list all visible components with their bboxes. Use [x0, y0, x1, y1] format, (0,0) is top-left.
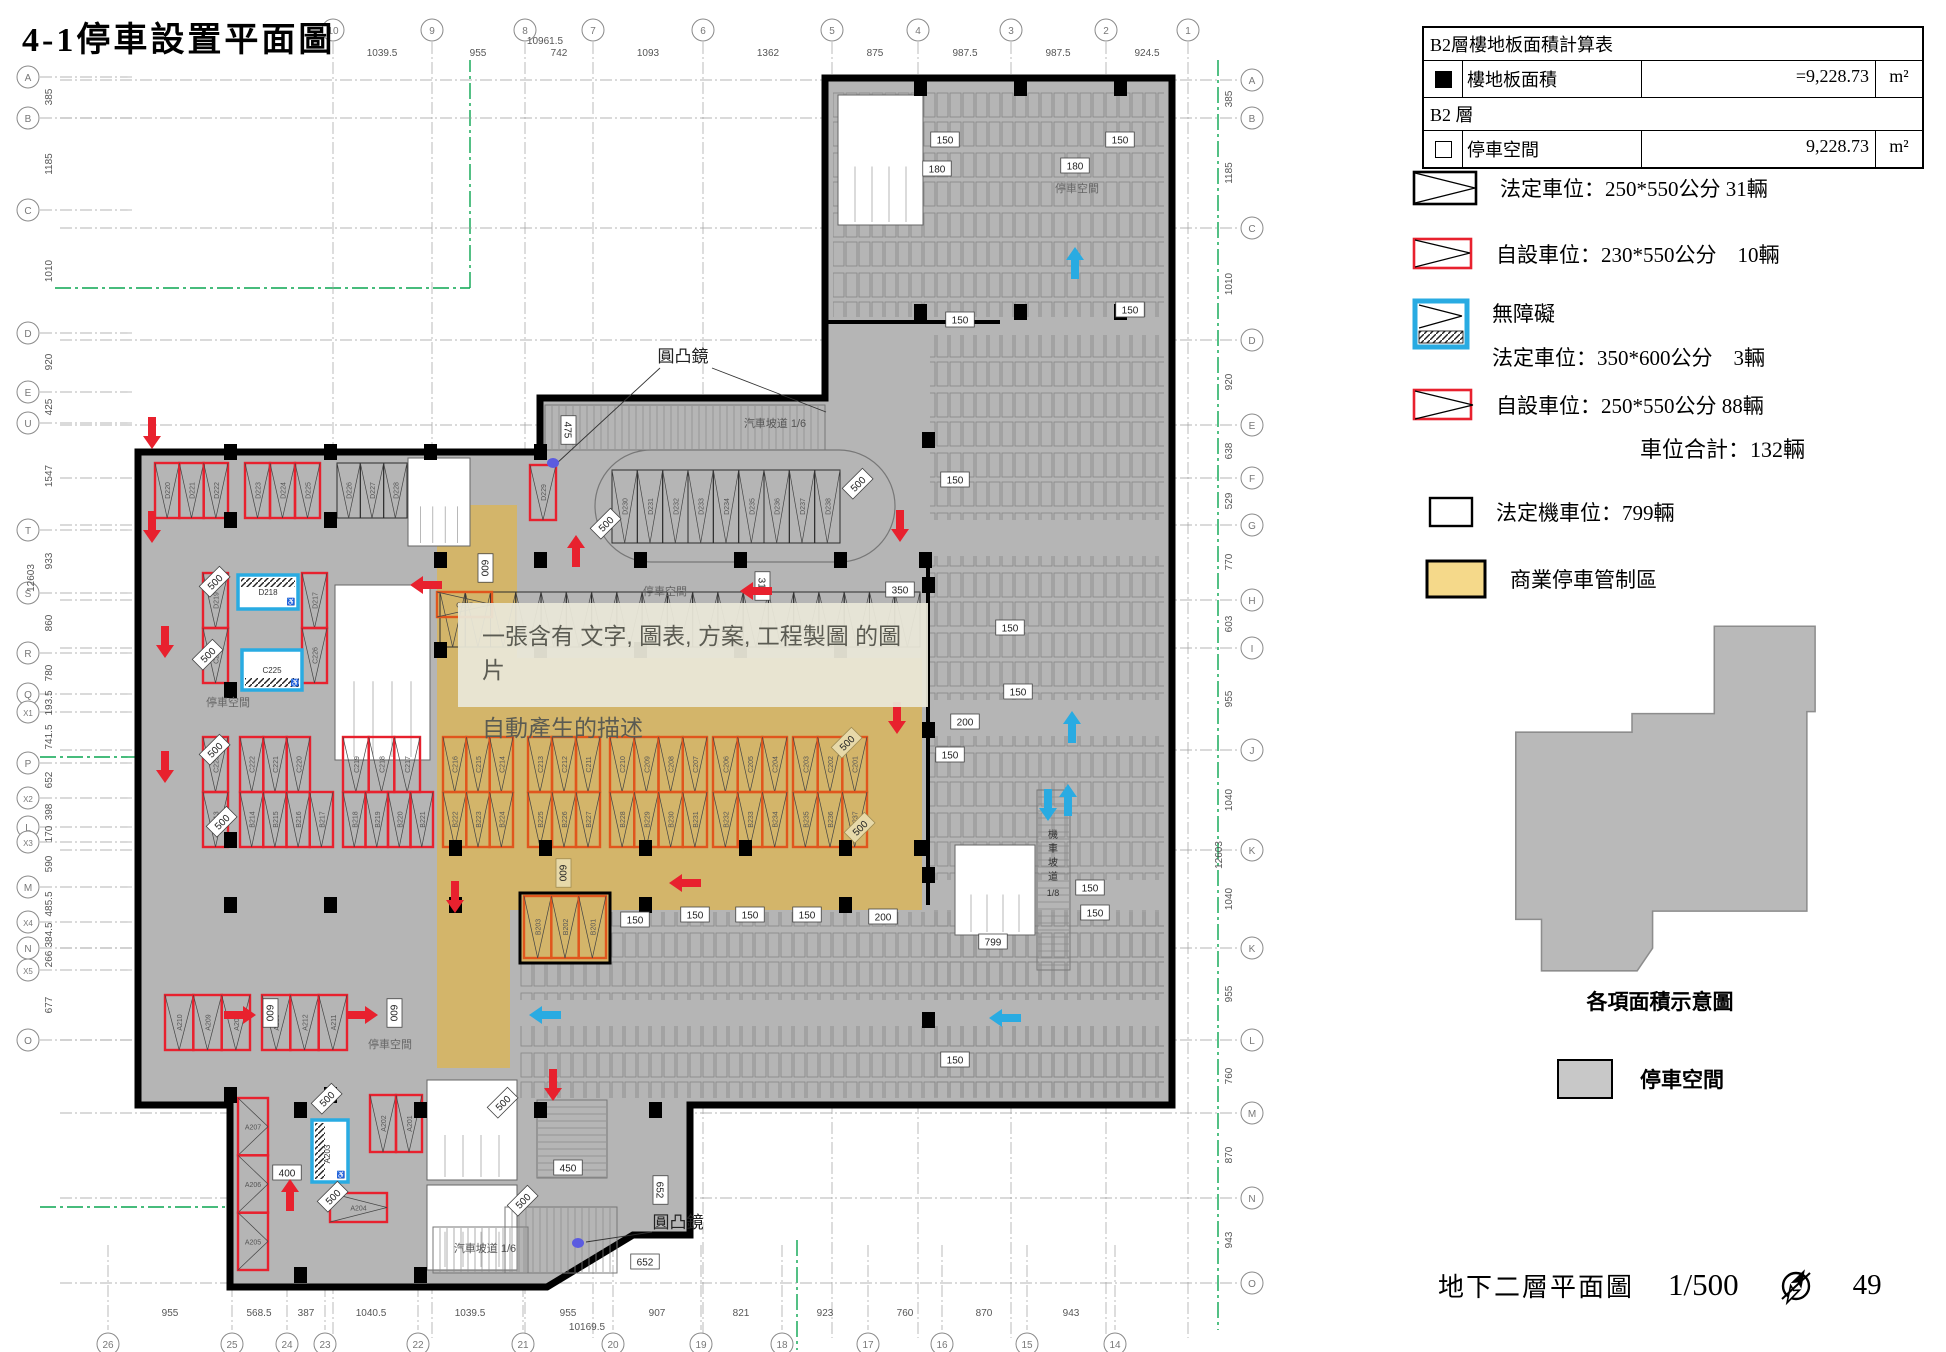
stall-label: B228: [620, 811, 627, 827]
tag-label: 200: [869, 909, 898, 924]
grid-label: 24: [281, 1340, 293, 1351]
stall-label: B218: [352, 811, 359, 827]
grid-label: O: [1248, 1279, 1256, 1290]
tag-text: 150: [1010, 688, 1027, 699]
dim-label: 955: [560, 1308, 577, 1319]
dim-label: 875: [867, 48, 884, 59]
column-marker: [534, 1102, 547, 1118]
column-marker: [734, 552, 747, 568]
stall-label: D220: [165, 482, 172, 499]
legend-item-self-car-230: 自設車位：230*550公分 10輛: [1412, 237, 1780, 271]
dim-label: 923: [817, 1308, 834, 1319]
column-marker: [539, 840, 552, 856]
tag-label: 652: [631, 1254, 660, 1269]
grid-label: X1: [23, 709, 33, 718]
dim-label: 741.5: [44, 724, 55, 749]
grid-label: 23: [319, 1340, 331, 1351]
grid-label: 9: [429, 26, 435, 37]
tag-label: 150: [736, 907, 765, 922]
column-marker: [639, 840, 652, 856]
tag-label: 150: [1076, 880, 1105, 895]
dim-label: 193.5: [44, 690, 55, 715]
stall-label: C204: [773, 756, 780, 773]
grid-label: B: [1249, 114, 1256, 125]
column-marker: [639, 897, 652, 913]
wheelchair-icon: ♿: [287, 597, 296, 606]
dim-label: 170: [44, 825, 55, 842]
drawing-sheet: 1098765432126252423222120191817161514ABC…: [0, 0, 1946, 1352]
accessible-stall-icon: [1412, 298, 1470, 350]
footer-scale: 1/500: [1668, 1267, 1739, 1303]
grid-label: 2: [1103, 26, 1109, 37]
stall-label: B234: [773, 811, 780, 827]
tag-text: 652: [637, 1258, 654, 1269]
legend-label: 自設車位：250*550公分 88輛: [1496, 390, 1764, 420]
column-marker: [434, 552, 447, 568]
key-plan-shape: [1516, 626, 1815, 971]
row-label: 樓地板面積: [1463, 61, 1641, 97]
stall-label: D228: [393, 482, 400, 499]
core-room: [335, 585, 430, 760]
grid-label: P: [25, 759, 32, 770]
dim-label: 987.5: [952, 48, 977, 59]
tag-label: 799: [979, 934, 1008, 949]
tag-label: 450: [554, 1160, 583, 1175]
dim-label: 860: [44, 614, 55, 631]
alt-text-line2: 自動產生的描述: [482, 709, 904, 743]
stall-label: C211: [586, 756, 593, 772]
tag-text: 150: [627, 916, 644, 927]
grid-label: L: [1249, 1036, 1255, 1047]
dim-label: 385: [1224, 90, 1235, 107]
plan-annotation: 12603: [26, 564, 37, 592]
alt-text-line1: 一張含有 文字, 圖表, 方案, 工程製圖 的圖片: [482, 617, 904, 685]
stall-label: B233: [748, 811, 755, 827]
stall-label: B203: [536, 919, 543, 935]
plan-annotation: 圓凸鏡: [658, 347, 709, 366]
row-label: 停車空間: [1463, 131, 1641, 167]
dim-label: 568.5: [246, 1308, 271, 1319]
column-marker: [294, 1267, 307, 1283]
grid-label: 20: [607, 1340, 619, 1351]
sheet-footer: 地下二層平面圖 1/500 49: [1438, 1262, 1882, 1308]
row-value: =9,228.73: [1641, 61, 1875, 97]
tag-label: 400: [273, 1165, 302, 1180]
tag-text: 652: [654, 1182, 665, 1199]
tag-label: 150: [621, 912, 650, 927]
tag-text: 150: [942, 751, 959, 762]
stall-label: C210: [620, 756, 627, 773]
column-marker: [414, 1267, 427, 1283]
column-marker: [224, 682, 237, 698]
plan-annotation: 汽車坡道 1/6: [454, 1241, 516, 1255]
column-marker: [324, 512, 337, 528]
tag-text: 150: [1122, 306, 1139, 317]
grid-label: G: [1248, 521, 1256, 532]
legend-label: 自設車位：230*550公分 10輛: [1496, 239, 1780, 269]
dim-label: 1547: [44, 464, 55, 487]
grid-label: 26: [102, 1340, 114, 1351]
stall-label: A201: [407, 1115, 414, 1131]
plan-annotation: 停車空間: [643, 584, 687, 598]
tag-label: 600: [387, 999, 402, 1028]
tag-label: 150: [681, 907, 710, 922]
stall-label: A210: [177, 1014, 184, 1030]
stall-label: A207: [245, 1125, 261, 1132]
grid-label: 3: [1008, 26, 1014, 37]
column-marker: [534, 444, 547, 460]
tag-text: 799: [985, 938, 1002, 949]
grid-label: Q: [24, 690, 32, 701]
stall-label: A202: [381, 1115, 388, 1131]
key-plan-caption: 各項面積示意圖: [1520, 986, 1800, 1016]
plan-annotation: 1/8: [1047, 888, 1060, 898]
tag-label: 150: [941, 472, 970, 487]
tag-label: 600: [263, 999, 278, 1028]
grid-label: M: [24, 883, 32, 894]
tag-label: 150: [996, 620, 1025, 635]
grid-label: F: [1249, 474, 1255, 485]
plan-annotation: 停車空間: [368, 1037, 412, 1051]
column-marker: [224, 897, 237, 913]
tag-label: 150: [946, 312, 975, 327]
grid-label: E: [1249, 421, 1256, 432]
tag-label: 652: [653, 1176, 668, 1205]
grid-label: T: [25, 526, 31, 537]
stall-label: C212: [562, 756, 569, 773]
dim-label: 760: [897, 1308, 914, 1319]
tag-text: 600: [557, 865, 568, 882]
grid-label: X3: [23, 839, 33, 848]
dim-label: 529: [1224, 492, 1235, 509]
dim-label: 1010: [1224, 272, 1235, 295]
tag-text: 600: [479, 560, 490, 577]
stall-label: C226: [313, 647, 320, 664]
stall-label: A205: [245, 1239, 261, 1246]
table-title: B2層樓地板面積計算表: [1424, 28, 1619, 60]
wheelchair-icon: ♿: [291, 678, 300, 687]
dim-label: 955: [470, 48, 487, 59]
dim-label: 1010: [44, 259, 55, 282]
tag-label: 150: [936, 747, 965, 762]
dim-label: 920: [44, 353, 55, 370]
dim-label: 955: [162, 1308, 179, 1319]
legend-item-motorcycle: 法定機車位：799輛: [1428, 496, 1675, 528]
parking-space-key: 停車空間: [1556, 1058, 1724, 1100]
tag-label: 600: [556, 859, 571, 888]
grid-label: 4: [915, 26, 921, 37]
column-marker: [739, 840, 752, 856]
tag-text: 150: [937, 136, 954, 147]
tag-text: 200: [957, 718, 974, 729]
core-room: [955, 845, 1035, 935]
dim-label: 955: [1224, 690, 1235, 707]
plan-annotation: 車: [1048, 842, 1058, 855]
stall-label: C225: [262, 666, 282, 675]
accessible-stall: D218♿: [238, 575, 298, 609]
column-marker: [414, 1102, 427, 1118]
dim-label: 987.5: [1045, 48, 1070, 59]
stall-label: D226: [347, 482, 354, 499]
stall-label: D233: [699, 498, 706, 515]
stall-label: A211: [331, 1014, 338, 1030]
stall-label: D218: [258, 588, 278, 597]
stall-label: B214: [250, 811, 257, 827]
stall-label: B221: [420, 811, 427, 827]
stall-label: C215: [476, 756, 483, 773]
dim-label: 603: [1224, 615, 1235, 632]
tag-text: 450: [560, 1164, 577, 1175]
tag-label: 150: [931, 132, 960, 147]
stall-label: D234: [724, 498, 731, 515]
north-arrow-icon: [1773, 1262, 1819, 1308]
dim-label: 870: [1224, 1146, 1235, 1163]
column-marker: [449, 840, 462, 856]
legend-label: 商業停車管制區: [1510, 564, 1657, 594]
tag-text: 150: [952, 316, 969, 327]
legend-label: 法定車位：350*600公分 3輛: [1492, 342, 1765, 372]
stall-label: D238: [825, 498, 832, 515]
tag-label: 600: [478, 554, 493, 583]
legend-label: 停車空間: [1640, 1064, 1724, 1094]
stall-label: A203: [323, 1144, 332, 1163]
plan-annotation: 10961.5: [527, 36, 564, 47]
grid-label: 17: [862, 1340, 874, 1351]
empty-square-icon: [1435, 141, 1452, 158]
column-marker: [839, 840, 852, 856]
area-calculation-table: B2層樓地板面積計算表 樓地板面積 =9,228.73 m² B2 層 停車空間…: [1422, 26, 1924, 169]
tag-label: 350: [886, 582, 915, 597]
dim-label: 907: [649, 1308, 666, 1319]
tag-text: 600: [388, 1005, 399, 1022]
auto-alt-text-overlay: 一張含有 文字, 圖表, 方案, 工程製圖 的圖片 自動產生的描述: [458, 603, 928, 707]
stall-label: D222: [214, 482, 221, 499]
grid-label: 19: [695, 1340, 707, 1351]
dim-label: 638: [1224, 442, 1235, 459]
grid-label: 15: [1021, 1340, 1033, 1351]
stall-label: B226: [562, 811, 569, 827]
dim-label: 924.5: [1134, 48, 1159, 59]
stall-label: B230: [669, 811, 676, 827]
column-marker: [224, 512, 237, 528]
grid-label: D: [24, 329, 31, 340]
row-value: 9,228.73: [1641, 131, 1875, 167]
stall-label: D221: [190, 482, 197, 499]
column-marker: [294, 1102, 307, 1118]
column-marker: [922, 722, 935, 738]
column-marker: [1114, 80, 1127, 96]
grid-label: R: [24, 649, 31, 660]
legend-item-statutory-car: 法定車位：250*550公分 31輛: [1412, 170, 1768, 206]
stall-label: D235: [749, 498, 756, 515]
dim-label: 652: [44, 771, 55, 788]
column-marker: [922, 1012, 935, 1028]
tag-label: 150: [1116, 302, 1145, 317]
grid-label: K: [1249, 846, 1256, 857]
dim-label: 760: [1224, 1067, 1235, 1084]
plan-annotation: 坡: [1048, 856, 1058, 869]
dim-label: 770: [1224, 553, 1235, 570]
grid-label: 1: [1185, 26, 1191, 37]
grid-label: N: [1248, 1194, 1255, 1205]
grid-label: 5: [829, 26, 835, 37]
column-marker: [1014, 80, 1027, 96]
column-marker: [224, 444, 237, 460]
tag-label: 310: [755, 572, 770, 601]
plan-annotation: 停車空間: [206, 695, 250, 709]
key-plan: [1505, 618, 1830, 978]
row-unit: m²: [1875, 61, 1922, 97]
legend-label: 法定機車位：799輛: [1496, 497, 1675, 527]
stall-label: C208: [669, 756, 676, 773]
stall-label: B219: [375, 811, 382, 827]
dim-label: 933: [44, 552, 55, 569]
column-marker: [224, 832, 237, 848]
stall-label: B201: [590, 919, 597, 935]
dim-label: 1362: [757, 48, 780, 59]
stall-label: D229: [541, 484, 548, 501]
dim-label: 590: [44, 855, 55, 872]
dim-label: 425: [44, 398, 55, 415]
grid-label: 6: [700, 26, 706, 37]
stall-label: C209: [644, 756, 651, 773]
grid-label: X4: [23, 919, 33, 928]
stall-label: B223: [476, 811, 483, 827]
plan-annotation: 道: [1048, 870, 1058, 883]
legend-item-self-car-250: 自設車位：250*550公分 88輛: [1412, 388, 1764, 422]
grid-label: D: [1248, 336, 1255, 347]
tag-text: 150: [1082, 884, 1099, 895]
grid-label: C: [1248, 224, 1255, 235]
accessible-stall: A203♿: [312, 1120, 348, 1182]
dim-label: 387: [298, 1308, 315, 1319]
plan-annotation: 圓凸鏡: [653, 1213, 704, 1232]
stall-label: B216: [296, 811, 303, 827]
table-row: 停車空間 9,228.73 m²: [1424, 130, 1922, 167]
grid-label: A: [25, 73, 32, 84]
dim-label: 266: [44, 950, 55, 967]
hatch-strip: [241, 578, 295, 587]
grid-label: N: [24, 944, 31, 955]
tag-text: 600: [264, 1005, 275, 1022]
stall-label: D232: [673, 498, 680, 515]
column-marker: [914, 304, 927, 320]
stall-label: C203: [803, 756, 810, 773]
tag-text: 150: [1002, 624, 1019, 635]
commercial-zone-icon: [1424, 558, 1488, 600]
column-marker: [839, 897, 852, 913]
stall-label: B217: [319, 811, 326, 827]
dim-label: 1039.5: [455, 1308, 486, 1319]
grid-label: 14: [1109, 1340, 1121, 1351]
stall-label: B231: [693, 811, 700, 827]
stall-label: C213: [538, 756, 545, 773]
tag-label: 150: [793, 907, 822, 922]
dim-label: 920: [1224, 373, 1235, 390]
row-unit: m²: [1875, 131, 1922, 167]
red-arrow-icon: [143, 417, 161, 449]
legend-item-commercial-zone: 商業停車管制區: [1424, 558, 1657, 600]
stall-label: C206: [723, 756, 730, 773]
stall-label: C201: [853, 756, 860, 773]
stall-label: C222: [250, 756, 257, 773]
dim-label: 1185: [44, 153, 55, 175]
section-label: B2 層: [1424, 98, 1480, 130]
page-title: 4-1停車設置平面圖: [22, 12, 335, 61]
tag-text: 150: [742, 911, 759, 922]
zone-highlight: [437, 910, 510, 1068]
plan-annotation: 10169.5: [569, 1322, 606, 1333]
grid-label: 7: [590, 26, 596, 37]
dim-label: 780: [44, 664, 55, 681]
self-stall-icon: [1412, 388, 1474, 422]
grid-label: M: [1248, 1109, 1256, 1120]
column-marker: [324, 897, 337, 913]
footer-title: 地下二層平面圖: [1438, 1267, 1634, 1304]
dim-label: 943: [1063, 1308, 1080, 1319]
dim-label: 1039.5: [367, 48, 398, 59]
stall-label: C221: [273, 756, 280, 773]
dim-label: 1040.5: [356, 1308, 387, 1319]
dim-label: 1040: [1224, 788, 1235, 811]
tag-text: 150: [1112, 136, 1129, 147]
page-number: 49: [1853, 1269, 1882, 1302]
grid-label: X5: [23, 967, 33, 976]
stall-label: D223: [256, 482, 263, 499]
core-room: [838, 95, 923, 225]
stall-label: C217: [405, 756, 412, 773]
column-marker: [224, 1087, 237, 1103]
stall-label: C214: [499, 756, 506, 773]
stall-label: A206: [245, 1182, 261, 1189]
grid-label: 21: [517, 1340, 529, 1351]
dim-label: 385: [44, 88, 55, 105]
tag-text: 150: [947, 1056, 964, 1067]
tag-label: 150: [1004, 684, 1033, 699]
self-stall-icon: [1412, 237, 1474, 271]
tag-label: 180: [1061, 158, 1090, 173]
grid-label: H: [1248, 596, 1255, 607]
dim-label: 485.5: [44, 891, 55, 916]
column-marker: [1014, 304, 1027, 320]
stall-label: C219: [354, 756, 361, 773]
stall-label: B236: [828, 811, 835, 827]
stall-label: B215: [273, 811, 280, 827]
plan-annotation: 汽車坡道 1/6: [744, 416, 806, 430]
plan-annotation: 機: [1048, 828, 1058, 841]
convex-mirror-dot: [572, 1238, 584, 1248]
dim-label: 955: [1224, 985, 1235, 1002]
stall-label: B235: [803, 811, 810, 827]
tag-text: 180: [1067, 162, 1084, 173]
grid-label: I: [1251, 644, 1254, 655]
column-marker: [922, 577, 935, 593]
column-marker: [922, 432, 935, 448]
dim-label: 1185: [1224, 162, 1235, 184]
column-marker: [914, 80, 927, 96]
aisle-band: [520, 1000, 1164, 1026]
grid-label: 22: [412, 1340, 424, 1351]
dim-label: 1040: [1224, 887, 1235, 910]
statutory-stall-icon: [1412, 170, 1478, 206]
dim-label: 398: [44, 803, 55, 820]
accessible-stall: C225♿: [242, 650, 302, 690]
tag-text: 475: [562, 422, 573, 439]
stall-label: A212: [303, 1014, 310, 1030]
stall-label: D217: [313, 592, 320, 609]
stall-label: D231: [648, 498, 655, 515]
plan-annotation: 停車空間: [1055, 181, 1099, 195]
